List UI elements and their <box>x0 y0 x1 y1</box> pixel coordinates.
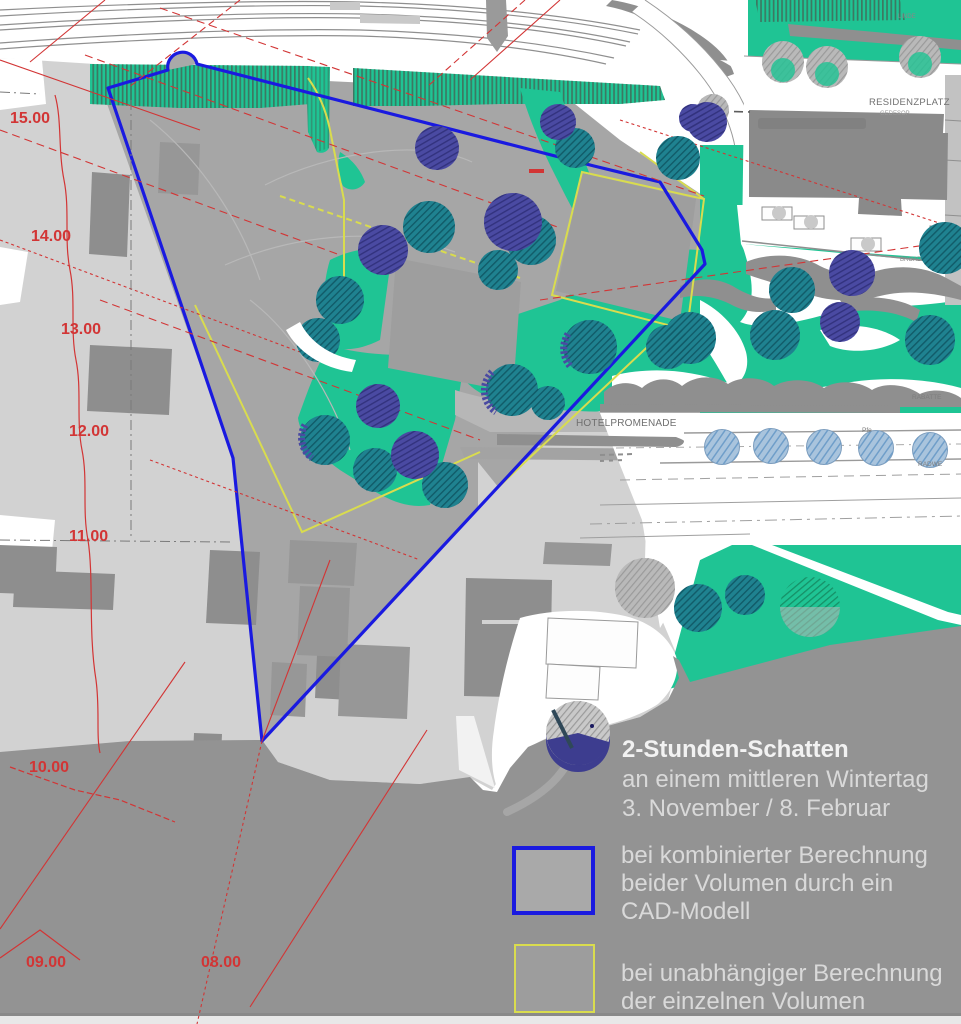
svg-text:beider Volumen durch ein: beider Volumen durch ein <box>621 870 893 897</box>
svg-text:CAD-Modell: CAD-Modell <box>621 898 750 925</box>
svg-text:der einzelnen Volumen: der einzelnen Volumen <box>621 988 865 1015</box>
svg-text:11.00: 11.00 <box>69 528 108 545</box>
svg-text:2-Stunden-Schatten: 2-Stunden-Schatten <box>622 736 849 763</box>
svg-text:LINDE: LINDE <box>898 14 916 20</box>
svg-text:14.00: 14.00 <box>31 228 71 245</box>
svg-text:bei kombinierter Berechnung: bei kombinierter Berechnung <box>621 842 928 869</box>
svg-text:15.00: 15.00 <box>10 110 50 127</box>
svg-text:RADWE: RADWE <box>918 461 943 468</box>
svg-text:GEDESOP: GEDESOP <box>880 111 910 117</box>
svg-text:12.00: 12.00 <box>69 423 109 440</box>
svg-text:RABATTE: RABATTE <box>912 394 942 401</box>
svg-text:RESIDENZPLATZ: RESIDENZPLATZ <box>869 97 950 108</box>
svg-text:an einem mittleren Wintertag: an einem mittleren Wintertag <box>622 766 929 793</box>
svg-text:Pfe: Pfe <box>862 427 872 434</box>
svg-text:bei unabhängiger Berechnung: bei unabhängiger Berechnung <box>621 960 943 987</box>
svg-text:3. November / 8. Februar: 3. November / 8. Februar <box>622 795 890 822</box>
svg-text:13.00: 13.00 <box>61 321 101 338</box>
svg-text:10.00: 10.00 <box>29 759 69 776</box>
svg-text:09.00: 09.00 <box>26 954 66 971</box>
svg-text:08.00: 08.00 <box>201 954 241 971</box>
svg-text:HOTELPROMENADE: HOTELPROMENADE <box>576 418 677 429</box>
